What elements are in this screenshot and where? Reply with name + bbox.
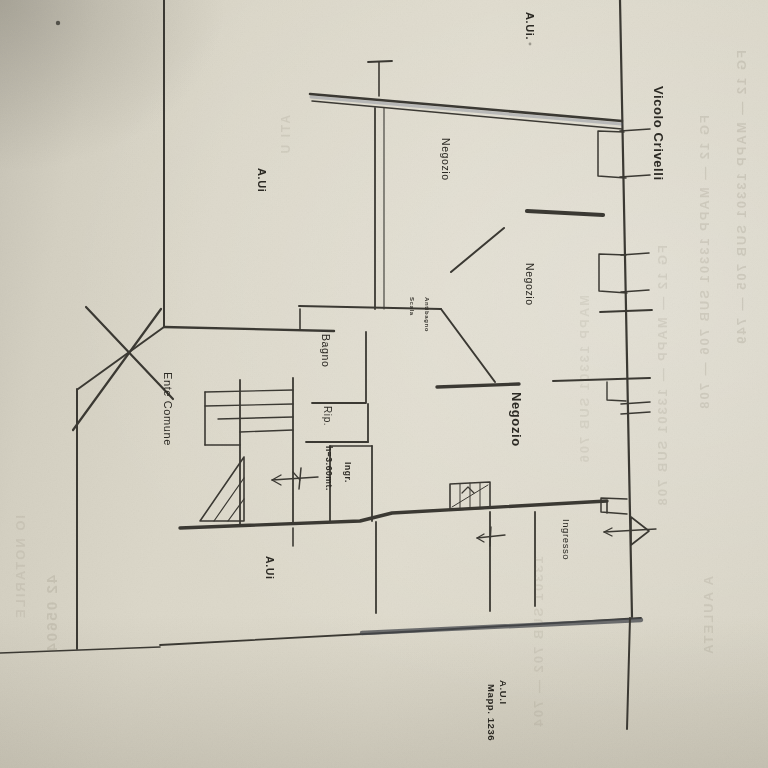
label-aui-br: A.U.I: [498, 680, 508, 705]
label-scala: Scala: [409, 297, 415, 316]
ghost-text-g3: FG 12 — MAPP — 13301 SUB 708: [656, 245, 669, 507]
staircase: [200, 378, 293, 524]
label-vicolo-crivelli: Vicolo Crivelli: [652, 86, 665, 181]
ghost-text-g2: FG 12 — MAPP 13301 SUB 706 — 708: [698, 115, 711, 411]
facade-openings: [598, 129, 652, 514]
ghost-text-g6: A AULETA: [702, 576, 715, 656]
ghost-text-g1: FG 12 — MAPP 13301 SUB 705 — 749: [735, 50, 748, 346]
label-rip: Rip.: [322, 406, 332, 426]
ghost-text-g4: MAPP 13301 SUB 706: [578, 295, 591, 464]
ghost-text-g7: 42 05604: [44, 575, 59, 654]
door-arrow-ingresso-wall: [477, 527, 505, 546]
cross-out-mark: [73, 307, 173, 430]
label-antibagno: Antibagno: [424, 297, 430, 332]
label-aui-top: A.Ui.: [524, 12, 535, 40]
top-wall: [310, 61, 622, 129]
door-arrow-stairs: [272, 468, 318, 489]
label-altezza: h=3.60mt.: [324, 446, 333, 491]
label-ingresso: Ingresso: [561, 519, 571, 560]
ghost-text-g9: ATI U: [280, 115, 292, 155]
label-ente-comune: Ente Comune: [162, 372, 173, 446]
hatched-shaft: [450, 482, 490, 510]
label-negozio-top: Negozio: [440, 138, 451, 181]
ghost-text-g8: IO NOTARILE: [14, 515, 27, 620]
label-ingr: Ingr.: [343, 462, 352, 483]
scan-specks: [56, 21, 532, 46]
label-negozio-mid: Negozio: [524, 263, 535, 306]
label-bagno: Bagno: [320, 334, 331, 367]
label-negozio-big: Negozio: [510, 392, 523, 447]
label-aui-bottom: A.Ui: [264, 556, 275, 579]
label-mapp-1236: Mapp. 1236: [486, 684, 496, 741]
ghost-text-g5: 13301 SUB 702 — 704: [532, 556, 545, 728]
scanned-floor-plan: A.Ui.Vicolo CrivelliA.UiNegozioNegozioBa…: [0, 0, 768, 768]
label-aui-upper-left: A.Ui: [256, 168, 267, 192]
